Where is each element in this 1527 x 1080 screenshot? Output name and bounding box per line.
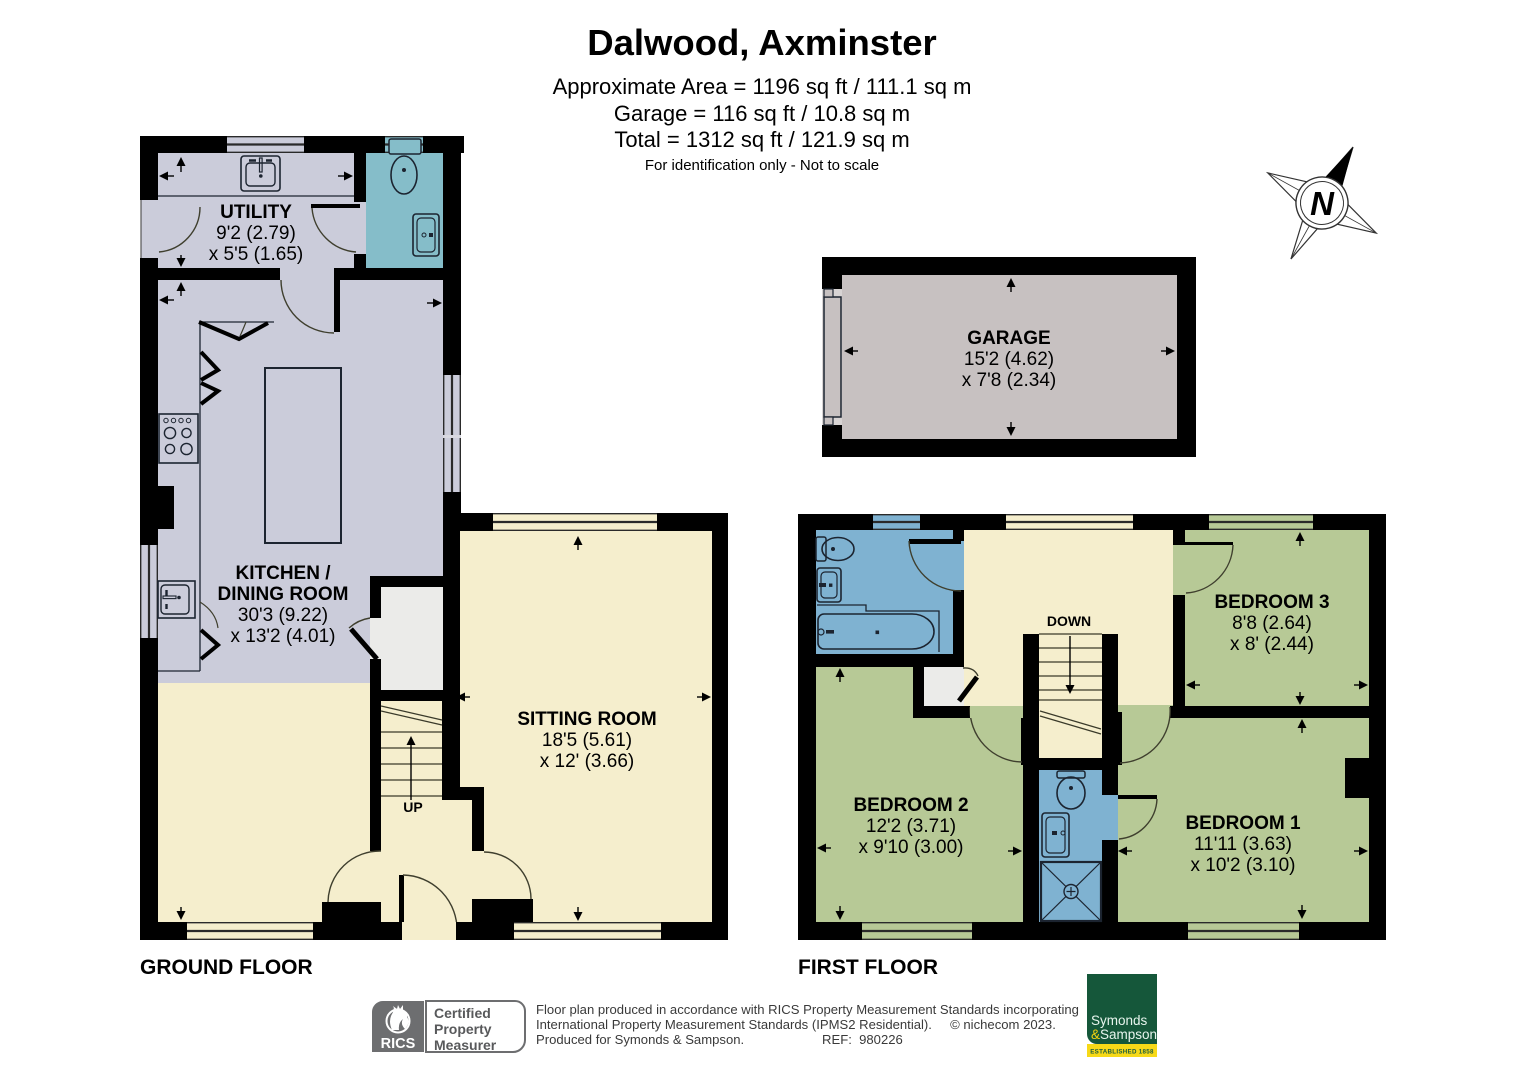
svg-text:x 7'8 (2.34): x 7'8 (2.34) [962,370,1056,391]
svg-text:Garage = 116 sq ft / 10.8 sq m: Garage = 116 sq ft / 10.8 sq m [614,101,910,126]
svg-text:&Sampson: &Sampson [1091,1027,1157,1042]
svg-text:GARAGE: GARAGE [967,328,1050,349]
svg-text:International Property Measure: International Property Measurement Stand… [536,1017,1056,1032]
svg-text:ESTABLISHED 1858: ESTABLISHED 1858 [1090,1049,1154,1056]
svg-text:UTILITY: UTILITY [220,202,292,223]
svg-text:Dalwood, Axminster: Dalwood, Axminster [587,22,937,63]
svg-text:x 9'10 (3.00): x 9'10 (3.00) [858,837,963,858]
svg-text:9'2 (2.79): 9'2 (2.79) [216,223,296,244]
svg-text:SITTING ROOM: SITTING ROOM [517,709,656,730]
svg-text:Symonds: Symonds [1091,1013,1148,1028]
svg-text:Property: Property [434,1021,492,1037]
svg-text:DINING ROOM: DINING ROOM [218,584,349,605]
svg-text:N: N [1310,185,1335,222]
svg-text:12'2 (3.71): 12'2 (3.71) [866,816,956,837]
svg-text:Produced for Symonds & Sampson: Produced for Symonds & Sampson. [536,1032,744,1047]
svg-text:8'8 (2.64): 8'8 (2.64) [1232,613,1312,634]
svg-text:15'2 (4.62): 15'2 (4.62) [964,349,1054,370]
svg-text:REF: 980226: REF: 980226 [822,1032,903,1047]
svg-text:BEDROOM 2: BEDROOM 2 [853,795,968,816]
svg-text:GROUND FLOOR: GROUND FLOOR [140,956,313,979]
svg-text:x 5'5 (1.65): x 5'5 (1.65) [209,244,303,265]
svg-text:FIRST FLOOR: FIRST FLOOR [798,956,938,979]
svg-text:RICS: RICS [381,1036,416,1052]
svg-text:30'3 (9.22): 30'3 (9.22) [238,605,328,626]
svg-text:BEDROOM 1: BEDROOM 1 [1185,813,1301,834]
svg-text:Certified: Certified [434,1005,491,1021]
svg-text:KITCHEN /: KITCHEN / [236,563,332,584]
svg-text:Total = 1312 sq ft / 121.9 sq: Total = 1312 sq ft / 121.9 sq m [614,127,909,152]
svg-text:Approximate Area = 1196 sq ft: Approximate Area = 1196 sq ft / 111.1 sq… [553,74,972,99]
svg-text:DOWN: DOWN [1047,613,1091,629]
svg-text:For identification only - Not: For identification only - Not to scale [645,157,879,174]
svg-text:11'11 (3.63): 11'11 (3.63) [1194,834,1292,855]
svg-text:Floor plan produced in accorda: Floor plan produced in accordance with R… [536,1002,1079,1017]
svg-text:UP: UP [403,799,422,815]
svg-text:BEDROOM 3: BEDROOM 3 [1214,592,1329,613]
svg-text:x 13'2 (4.01): x 13'2 (4.01) [230,626,335,647]
svg-text:Measurer: Measurer [434,1037,497,1053]
svg-text:x 8' (2.44): x 8' (2.44) [1230,634,1314,655]
svg-text:18'5 (5.61): 18'5 (5.61) [542,730,632,751]
svg-text:x 12' (3.66): x 12' (3.66) [540,751,634,772]
svg-text:x 10'2 (3.10): x 10'2 (3.10) [1190,855,1295,876]
